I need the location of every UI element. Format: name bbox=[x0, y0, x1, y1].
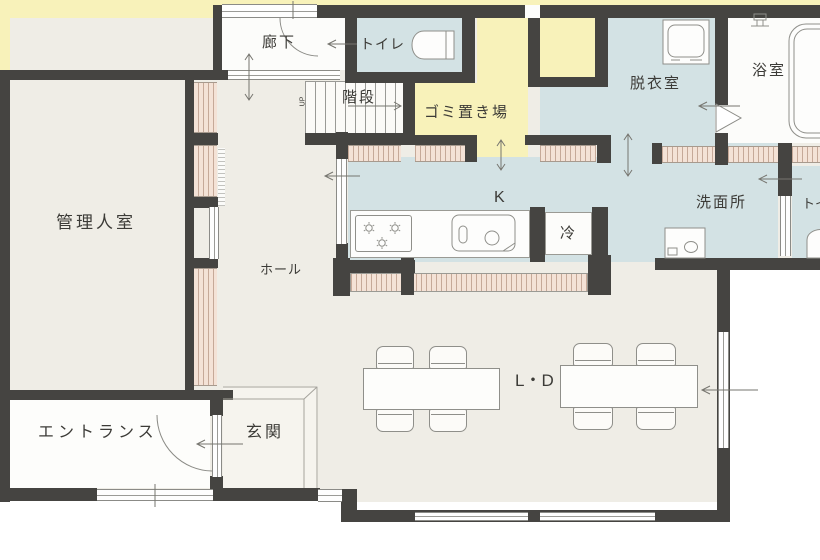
wall-toiletN-right bbox=[462, 18, 475, 78]
wall-genkan-bottom bbox=[213, 488, 320, 501]
room-label-garbage: ゴミ置き場 bbox=[424, 105, 509, 120]
manager-door-pocket bbox=[218, 148, 225, 206]
wall-storage-right bbox=[595, 18, 608, 87]
wall-entrance-bottom bbox=[0, 488, 97, 501]
room-label-bath: 浴室 bbox=[752, 63, 786, 78]
wall-band-pillar-600 bbox=[597, 135, 611, 163]
wall-stairs-bottom bbox=[305, 133, 415, 145]
chair-icon bbox=[573, 407, 613, 430]
wall-bath-left-bottom bbox=[715, 133, 728, 165]
band-hatch-a bbox=[348, 145, 401, 162]
room-bath-floor bbox=[728, 18, 820, 143]
outside-bottom-left bbox=[0, 501, 345, 560]
room-entrance-floor bbox=[10, 398, 210, 488]
manager-wall-hatch-1 bbox=[193, 82, 217, 133]
room-label-stairs: 階段 bbox=[342, 90, 376, 105]
wall-column-left bbox=[528, 18, 540, 77]
wall-counterbar-right bbox=[588, 255, 611, 295]
wall-manager-core-2 bbox=[185, 268, 194, 390]
wall-yellow-bottom bbox=[0, 70, 215, 80]
wall-manager-cap-1 bbox=[185, 133, 218, 145]
wall-wc-divider bbox=[778, 143, 792, 196]
outside-bottom bbox=[341, 522, 820, 560]
room-label-living-dining: L・D bbox=[515, 372, 554, 389]
room-label-kitchen: K bbox=[494, 190, 505, 206]
wall-counterbar-pillar bbox=[401, 258, 414, 295]
room-label-corridor: 廊下 bbox=[262, 35, 296, 50]
room-label-washroom: 洗面所 bbox=[696, 195, 747, 210]
stove bbox=[355, 215, 412, 252]
sliding-door-corridor bbox=[228, 70, 340, 80]
window-bottom-1 bbox=[415, 512, 528, 521]
window-bottom-2 bbox=[540, 512, 655, 521]
wall-manager-core-1 bbox=[185, 80, 194, 258]
wall-bath-left-top bbox=[715, 18, 728, 105]
room-garbage-column-floor bbox=[477, 18, 528, 162]
window-right bbox=[718, 332, 729, 448]
floorplan: 廊下 トイレ 階段 UP ゴミ置き場 脱衣室 浴室 管理人室 ホール K 冷 洗… bbox=[0, 0, 820, 560]
wall-washroom-bottom bbox=[655, 258, 820, 270]
counter-bar-hatch bbox=[350, 273, 588, 292]
wall-entrance-top bbox=[0, 390, 233, 400]
room-label-toilet-east: トイレ bbox=[802, 197, 820, 210]
wall-corridor-bottom-bit bbox=[215, 70, 228, 80]
manager-wall-hatch-3 bbox=[193, 268, 217, 386]
wall-fridge-left bbox=[530, 207, 545, 262]
room-toilet-east-floor bbox=[792, 166, 820, 258]
dining-table-1 bbox=[363, 368, 500, 410]
window-corridor-top bbox=[222, 4, 317, 18]
door-genkan-leaf bbox=[212, 415, 222, 477]
wall-manager-cap-3 bbox=[185, 258, 218, 268]
wall-top-gap bbox=[525, 5, 540, 18]
wall-garbage-pillar bbox=[465, 138, 477, 162]
band-hatch-e bbox=[728, 146, 778, 163]
chair-icon bbox=[636, 407, 676, 430]
chair-icon bbox=[573, 343, 613, 366]
chair-icon bbox=[376, 346, 414, 369]
wall-band-pillar-652 bbox=[652, 143, 662, 164]
band-hatch-f bbox=[792, 146, 820, 163]
sliding-door-kitchen bbox=[336, 159, 347, 244]
sliding-door-wc bbox=[780, 196, 791, 256]
band-hatch-b bbox=[415, 145, 465, 162]
room-label-toilet-north: トイレ bbox=[360, 37, 405, 51]
window-genkan-side bbox=[318, 489, 342, 502]
wall-genkan-left-top bbox=[210, 390, 223, 416]
room-label-hall: ホール bbox=[260, 263, 302, 276]
stairs-up-label: UP bbox=[299, 97, 306, 107]
wall-counterbar-left bbox=[333, 258, 350, 296]
wall-left bbox=[0, 70, 10, 502]
room-label-dressing: 脱衣室 bbox=[630, 76, 681, 91]
room-label-manager: 管理人室 bbox=[56, 214, 136, 231]
chair-icon bbox=[636, 343, 676, 366]
entrance-door bbox=[97, 489, 213, 501]
wall-genkan-left-bottom bbox=[210, 476, 223, 489]
room-label-entrance: エントランス bbox=[38, 425, 158, 441]
wall-topleft-vert bbox=[213, 5, 222, 80]
band-hatch-d bbox=[662, 146, 715, 163]
dining-table-2 bbox=[560, 365, 698, 408]
band-hatch-c bbox=[540, 145, 596, 162]
wall-bottom bbox=[341, 510, 730, 522]
chair-icon bbox=[429, 346, 467, 369]
wall-stairs-right bbox=[403, 83, 415, 135]
bath-door-gap bbox=[715, 105, 728, 133]
manager-wall-hatch-2 bbox=[193, 145, 217, 197]
room-label-fridge: 冷 bbox=[560, 226, 575, 241]
chair-icon bbox=[376, 409, 414, 432]
outside-bottom-right bbox=[730, 270, 820, 560]
wall-kitchen-left-top bbox=[336, 132, 348, 159]
wall-toiletN-bottom bbox=[345, 72, 475, 83]
storage-yellow-floor bbox=[540, 18, 595, 77]
room-label-genkan: 玄関 bbox=[246, 425, 284, 441]
wall-toiletN-left bbox=[345, 18, 357, 74]
chair-icon bbox=[429, 409, 467, 432]
sliding-door-manager bbox=[209, 207, 219, 259]
